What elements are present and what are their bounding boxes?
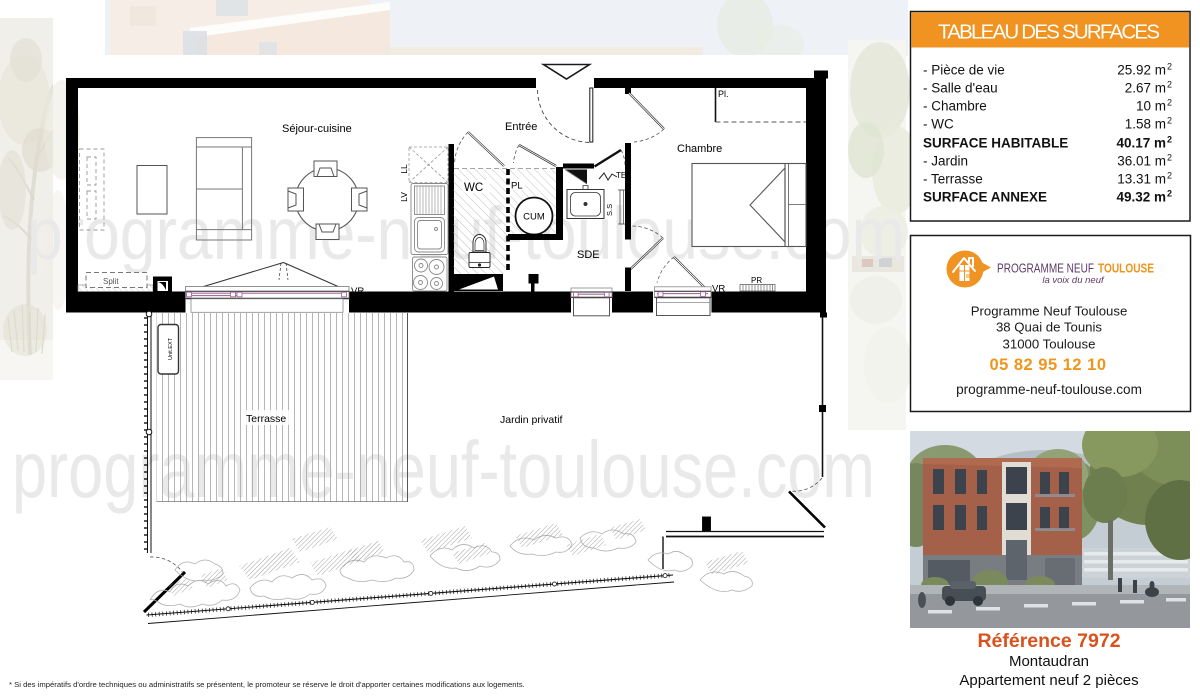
svg-text:2: 2 bbox=[1167, 80, 1172, 90]
svg-text:2: 2 bbox=[1167, 135, 1172, 145]
svg-text:49.32 m: 49.32 m bbox=[1116, 190, 1166, 205]
svg-text:TOULOUSE: TOULOUSE bbox=[1098, 262, 1154, 276]
svg-text:Terrasse: Terrasse bbox=[246, 413, 286, 425]
svg-text:2.67 m: 2.67 m bbox=[1125, 81, 1166, 96]
svg-text:1.58 m: 1.58 m bbox=[1125, 117, 1166, 132]
svg-text:LL: LL bbox=[399, 164, 409, 174]
svg-text:la voix du neuf: la voix du neuf bbox=[1042, 275, 1105, 286]
svg-text:05 82 95 12 10: 05 82 95 12 10 bbox=[989, 356, 1106, 374]
svg-text:Split: Split bbox=[103, 277, 119, 286]
svg-text:31000 Toulouse: 31000 Toulouse bbox=[1003, 337, 1096, 352]
svg-text:25.92 m: 25.92 m bbox=[1117, 63, 1166, 78]
svg-text:CUM: CUM bbox=[523, 212, 545, 223]
svg-text:LV: LV bbox=[399, 192, 409, 202]
svg-text:- Terrasse: - Terrasse bbox=[923, 172, 983, 187]
svg-text:13.31 m: 13.31 m bbox=[1117, 172, 1166, 187]
svg-text:2: 2 bbox=[1167, 153, 1172, 163]
svg-text:Jardin privatif: Jardin privatif bbox=[500, 414, 563, 426]
svg-text:2: 2 bbox=[1167, 98, 1172, 108]
svg-text:programme-neuf-toulouse.com: programme-neuf-toulouse.com bbox=[12, 426, 875, 515]
svg-text:38 Quai de Tounis: 38 Quai de Tounis bbox=[996, 320, 1102, 335]
svg-text:SURFACE ANNEXE: SURFACE ANNEXE bbox=[923, 190, 1047, 205]
svg-text:VR: VR bbox=[351, 286, 364, 297]
svg-text:36.01 m: 36.01 m bbox=[1117, 154, 1166, 169]
svg-text:programme-neuf-toulouse.com: programme-neuf-toulouse.com bbox=[956, 382, 1142, 397]
svg-text:2: 2 bbox=[1167, 62, 1172, 72]
svg-text:Appartement neuf 2 pièces: Appartement neuf 2 pièces bbox=[959, 672, 1138, 689]
svg-text:Pl.: Pl. bbox=[718, 89, 729, 99]
svg-text:WC: WC bbox=[464, 182, 483, 194]
svg-text:Référence 7972: Référence 7972 bbox=[977, 630, 1120, 652]
svg-text:Entrée: Entrée bbox=[505, 121, 537, 133]
svg-text:Montaudran: Montaudran bbox=[1009, 653, 1089, 670]
svg-text:Chambre: Chambre bbox=[677, 143, 722, 155]
svg-text:Programme Neuf Toulouse: Programme Neuf Toulouse bbox=[971, 304, 1128, 319]
svg-text:2: 2 bbox=[1167, 171, 1172, 181]
svg-text:- WC: - WC bbox=[923, 117, 954, 132]
svg-text:- Chambre: - Chambre bbox=[923, 99, 987, 114]
svg-text:- Pièce de vie: - Pièce de vie bbox=[923, 63, 1005, 78]
svg-text:- Salle d'eau: - Salle d'eau bbox=[923, 81, 998, 96]
svg-text:TE: TE bbox=[616, 171, 626, 180]
svg-text:40.17 m: 40.17 m bbox=[1116, 136, 1166, 151]
svg-text:- Jardin: - Jardin bbox=[923, 154, 968, 169]
svg-text:PROGRAMME NEUF: PROGRAMME NEUF bbox=[997, 262, 1094, 276]
svg-text:SURFACE HABITABLE: SURFACE HABITABLE bbox=[923, 136, 1068, 151]
svg-text:Séjour-cuisine: Séjour-cuisine bbox=[282, 123, 352, 135]
svg-text:PR: PR bbox=[751, 276, 762, 285]
svg-text:* Si des impératifs d'ordre te: * Si des impératifs d'ordre techniques o… bbox=[9, 680, 525, 689]
svg-text:Unit.EXT: Unit.EXT bbox=[168, 337, 174, 360]
svg-text:PL: PL bbox=[511, 181, 523, 192]
svg-text:2: 2 bbox=[1167, 116, 1172, 126]
svg-text:10 m: 10 m bbox=[1136, 99, 1166, 114]
svg-text:VR: VR bbox=[712, 284, 725, 295]
svg-text:2: 2 bbox=[1167, 189, 1172, 199]
svg-text:SDE: SDE bbox=[577, 249, 600, 261]
svg-text:TABLEAU DES SURFACES: TABLEAU DES SURFACES bbox=[938, 21, 1160, 44]
svg-text:S.S: S.S bbox=[605, 204, 614, 216]
